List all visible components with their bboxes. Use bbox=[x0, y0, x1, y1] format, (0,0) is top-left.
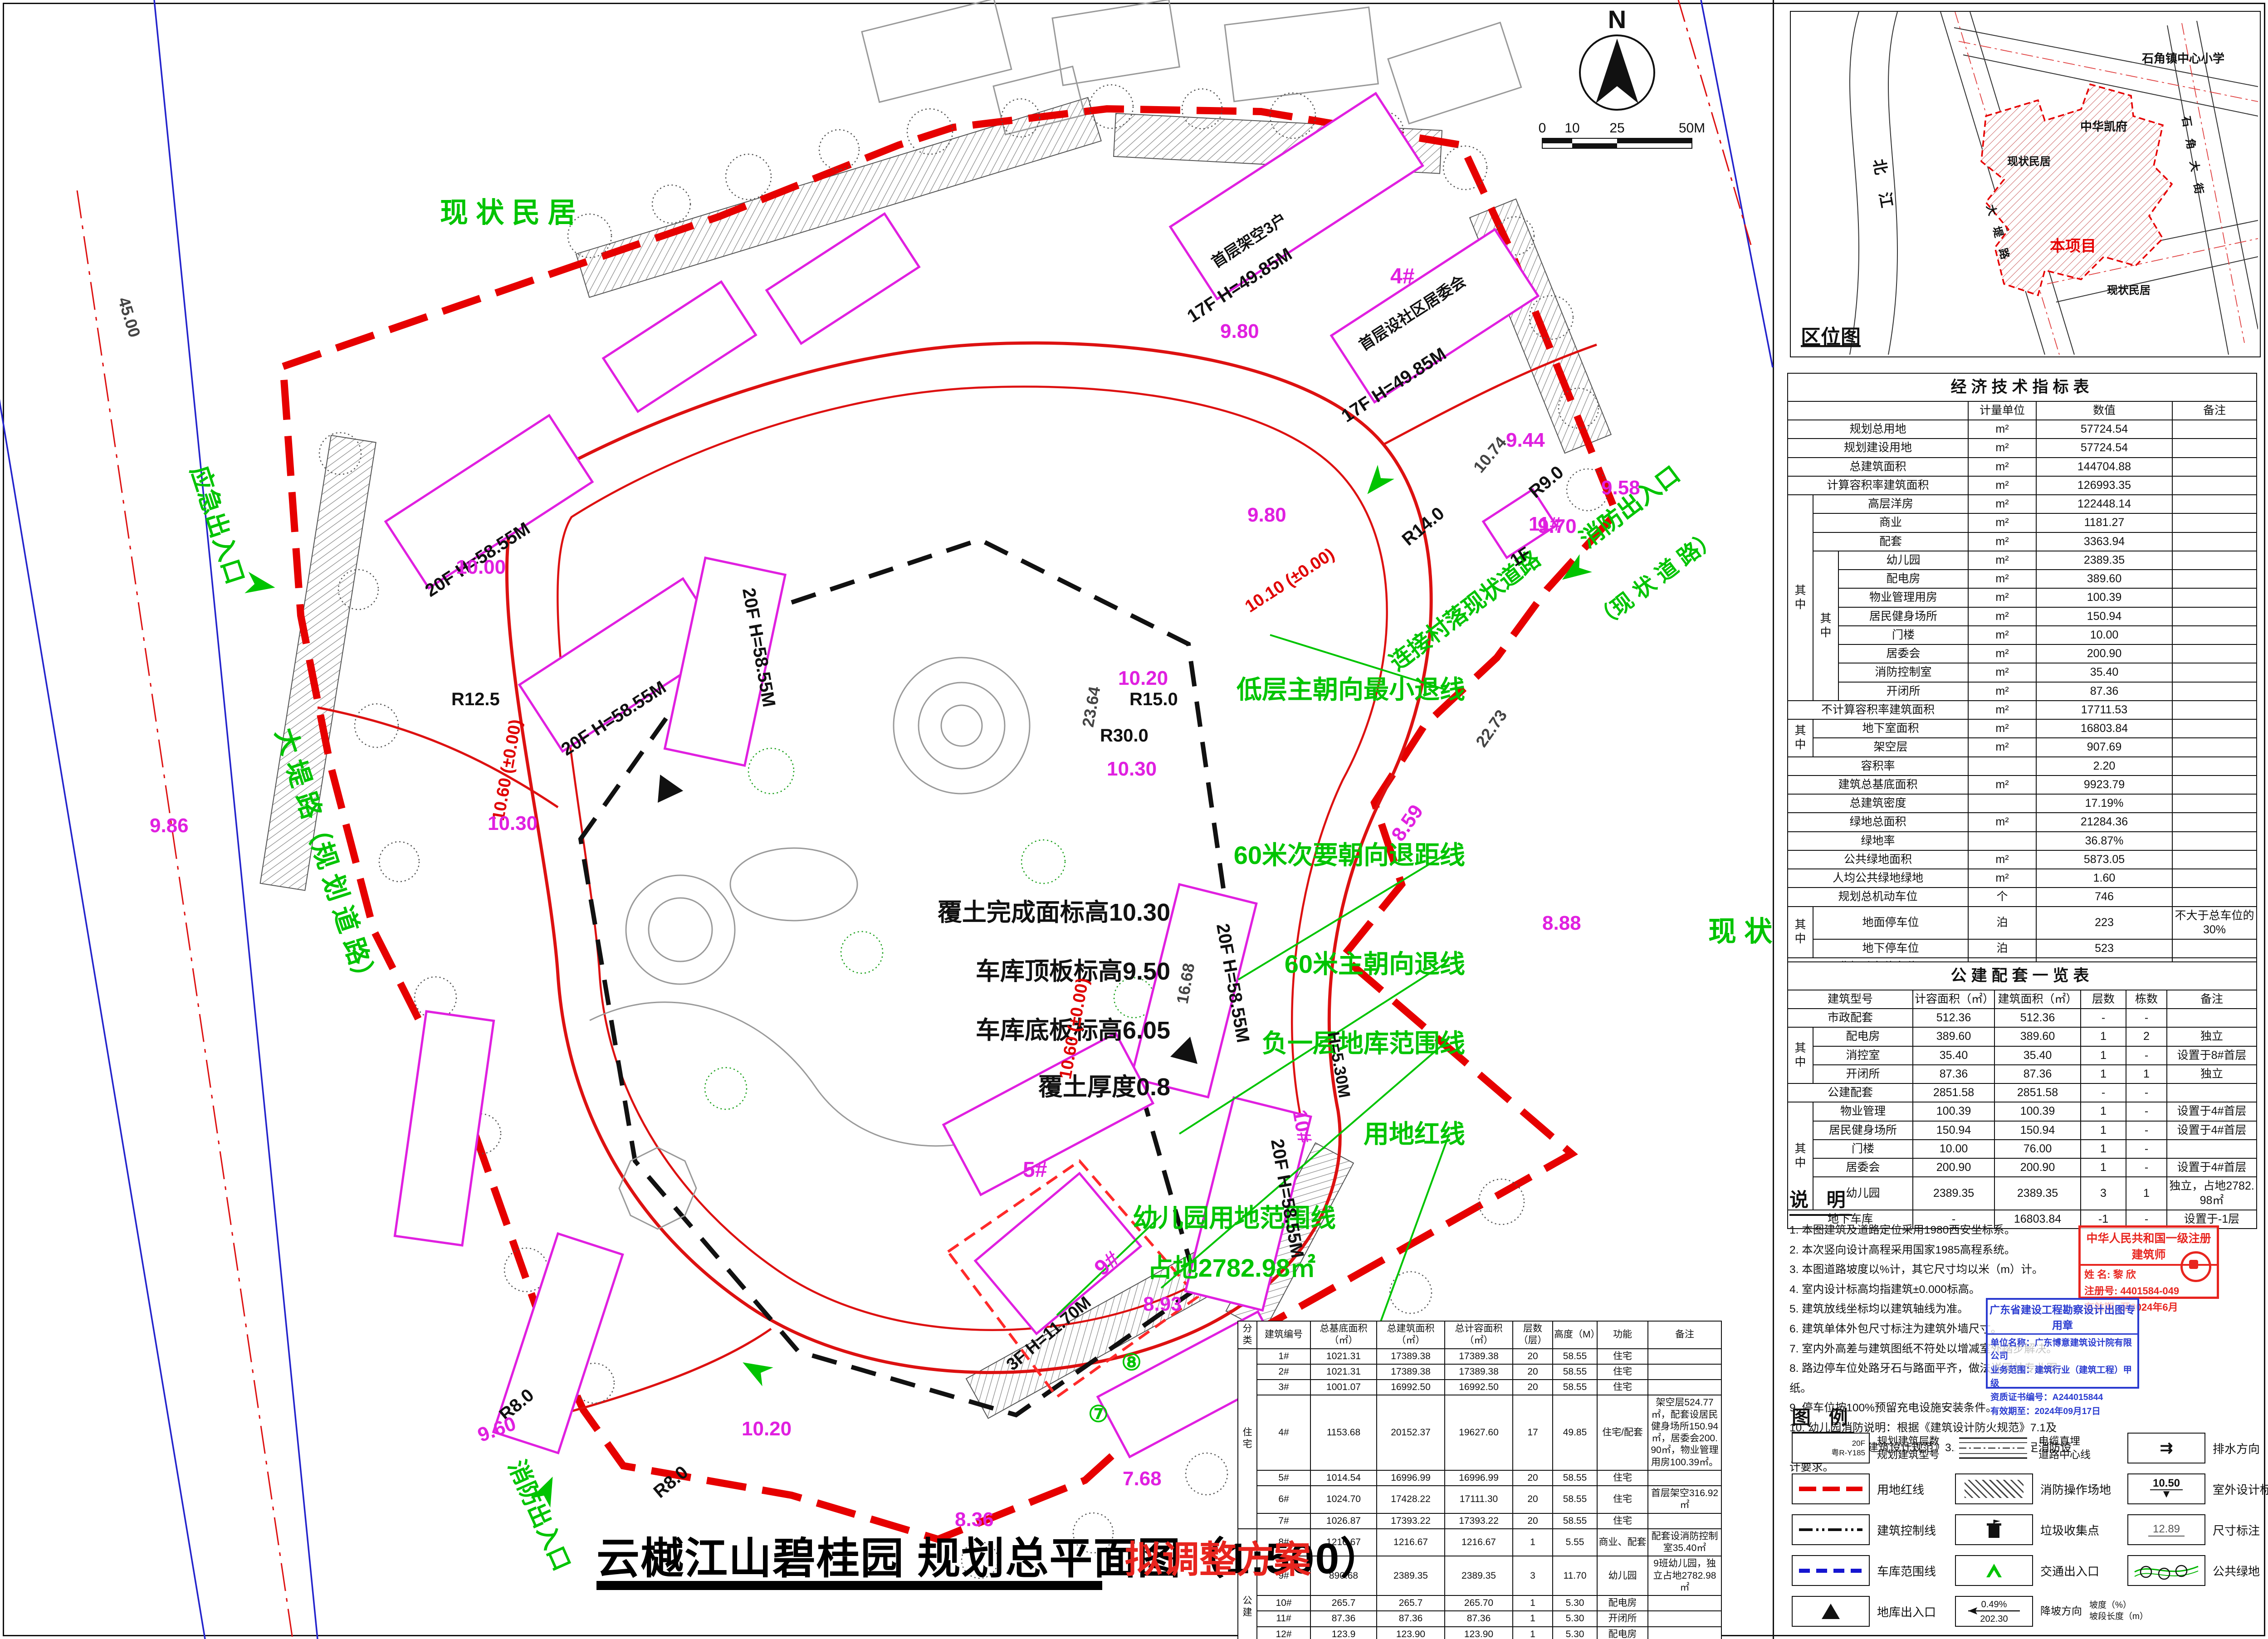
table-cell: 58.55 bbox=[1553, 1486, 1597, 1513]
table-row: 不计算容积率建筑面积m²17711.53 bbox=[1788, 701, 2257, 719]
table-cell: 2851.58 bbox=[1913, 1083, 1994, 1102]
table-cell bbox=[1648, 1513, 1721, 1529]
table-cell: - bbox=[2081, 1083, 2126, 1102]
table-cell bbox=[2172, 663, 2257, 682]
table-cell: 总计容面积（㎡） bbox=[1445, 1321, 1513, 1349]
table-row: 容积率2.20 bbox=[1788, 757, 2257, 776]
stamp-emblem-icon bbox=[2180, 1251, 2211, 1282]
table-cell: 总建筑面积 bbox=[1788, 458, 1968, 476]
table-cell: 消防控制室 bbox=[1838, 663, 1968, 682]
table-cell: 容积率 bbox=[1788, 757, 1968, 776]
table-cell bbox=[1648, 1349, 1721, 1364]
table-cell: 1 bbox=[2081, 1158, 2126, 1177]
title-underline bbox=[596, 1581, 1102, 1590]
table-cell: m² bbox=[1968, 551, 2036, 570]
table-cell: 16803.84 bbox=[2036, 719, 2172, 738]
spot-elev: 8.88 bbox=[1542, 912, 1581, 934]
table-row: 居委会200.90200.901-设置于4#首层 bbox=[1788, 1158, 2257, 1177]
label-kindergarten-line: 幼儿园用地范围线 bbox=[1133, 1204, 1336, 1232]
legend-item-control-line: 建筑控制线 bbox=[1792, 1512, 1936, 1547]
table-cell: 1 bbox=[2081, 1121, 2126, 1140]
table-cell: 其中 bbox=[1788, 1027, 1813, 1083]
table-row: 其中幼儿园m²2389.35 bbox=[1788, 551, 2257, 570]
legend-label: 公共绿地 bbox=[2213, 1562, 2260, 1579]
table-cell: 10.00 bbox=[1913, 1140, 1994, 1158]
legend-label: 建筑控制线 bbox=[1877, 1522, 1936, 1538]
table-cell: 公建配套 bbox=[1788, 1083, 1913, 1102]
legend-label: 排水方向 bbox=[2213, 1440, 2260, 1457]
legend-label: 地库出入口 bbox=[1877, 1603, 1936, 1620]
spot-elev: 10.20 bbox=[1118, 667, 1168, 689]
table-cell: 35.40 bbox=[1994, 1046, 2081, 1065]
table-cell: 2389.35 bbox=[2036, 551, 2172, 570]
table-cell: 58.55 bbox=[1553, 1470, 1597, 1486]
table-row: 分类建筑编号总基底面积（㎡）总建筑面积（㎡）总计容面积（㎡）层数（层）高度（M）… bbox=[1238, 1321, 1721, 1349]
table-cell: 设置于4#首层 bbox=[2167, 1158, 2257, 1177]
level-mark-icon: ▼ bbox=[2161, 1488, 2172, 1500]
note-item: 3. 本图道路坡度以%计，其它尺寸均以米（m）计。 bbox=[1789, 1260, 2074, 1280]
scale-bar: 0 10 25 50M bbox=[1539, 121, 1706, 148]
table-cell: 建筑编号 bbox=[1257, 1321, 1310, 1349]
table-cell bbox=[2172, 850, 2257, 869]
table-row: 物业管理用房m²100.39 bbox=[1788, 588, 2257, 607]
table-cell: 2389.35 bbox=[1377, 1556, 1445, 1595]
red-line-icon bbox=[1799, 1487, 1862, 1491]
planned-buildings bbox=[386, 93, 1556, 1457]
spot-elev: 8.59 bbox=[1387, 800, 1427, 845]
table-cell: 数值 bbox=[2036, 401, 2172, 420]
legend-label: 规划建筑层数 bbox=[1877, 1435, 1940, 1447]
locmap-street-label: 石角大街 bbox=[2180, 115, 2208, 207]
table-cell: 1 bbox=[2081, 1065, 2126, 1083]
table-cell bbox=[2172, 513, 2257, 532]
table-cell: 其中 bbox=[1788, 495, 1813, 701]
architect-st: 中华人民共和国一级注册建筑师 姓 名: 黎 欣 注册号: 4401584-049… bbox=[2078, 1225, 2219, 1299]
table-cell bbox=[2167, 1083, 2257, 1102]
table-row: 架空层m²907.69 bbox=[1788, 738, 2257, 756]
table-cell: 备注 bbox=[1648, 1321, 1721, 1349]
stamp-blue-l2: 业务范围：建筑行业（建筑工程）甲级 bbox=[1988, 1362, 2137, 1389]
table-cell: 1 bbox=[1513, 1595, 1553, 1611]
table-cell: m² bbox=[1968, 513, 2036, 532]
stamp-reg-label: 注册号: bbox=[2084, 1285, 2117, 1297]
table-cell: 1181.27 bbox=[2036, 513, 2172, 532]
north-arrow: N bbox=[1580, 5, 1654, 110]
table-cell: 泊 bbox=[1968, 939, 2036, 958]
table-cell bbox=[2172, 682, 2257, 701]
table-cell: 746 bbox=[2036, 888, 2172, 906]
table-cell: 11# bbox=[1257, 1611, 1310, 1626]
table-cell: 计算容积率建筑面积 bbox=[1788, 476, 1968, 495]
table-row: 建筑型号计容面积（㎡）建筑面积（㎡）层数栋数备注 bbox=[1788, 990, 2257, 1009]
table-cell: 1 bbox=[2081, 1140, 2126, 1158]
table-row: 居委会m²200.90 bbox=[1788, 644, 2257, 663]
table-cell: m² bbox=[1968, 663, 2036, 682]
table-cell bbox=[1968, 794, 2036, 813]
spot-elev: 9.70 bbox=[1538, 515, 1577, 537]
table-row: 总建筑密度17.19% bbox=[1788, 794, 2257, 813]
label-emergency-exit: 应急出入口 bbox=[186, 463, 249, 587]
table-cell: 265.7 bbox=[1377, 1595, 1445, 1611]
drawing-sheet: N 0 10 25 50M 现 状 民 居 应急出入口 大 堤 路（规 划 道 … bbox=[0, 0, 2268, 1639]
table-cell: 计容面积（㎡） bbox=[1913, 990, 1994, 1009]
table-cell: 76.00 bbox=[1994, 1140, 2081, 1158]
table-cell: 1 bbox=[1513, 1611, 1553, 1626]
table-cell: 栋数 bbox=[2126, 990, 2167, 1009]
table-cell: m² bbox=[1968, 813, 2036, 831]
notes-title: 说 明 bbox=[1789, 1185, 1852, 1216]
table-cell: 49.85 bbox=[1553, 1395, 1597, 1470]
locmap-resid2-label: 现状民居 bbox=[2107, 284, 2151, 297]
table-cell: 10.00 bbox=[2036, 626, 2172, 644]
table-cell: m² bbox=[1968, 682, 2036, 701]
table-cell: 不计算容积率建筑面积 bbox=[1788, 701, 1968, 719]
table-cell: 512.36 bbox=[1994, 1009, 2081, 1027]
table-cell: 备注 bbox=[2167, 990, 2257, 1009]
table-cell: 住宅 bbox=[1597, 1349, 1648, 1364]
table-row: 其中地面停车位泊223不大于总车位的30% bbox=[1788, 907, 2257, 940]
table-cell: 地下室面积 bbox=[1813, 719, 1968, 738]
table-cell: 住宅 bbox=[1597, 1513, 1648, 1529]
table-row: 3#1001.0716992.5016992.502058.55住宅 bbox=[1238, 1380, 1721, 1395]
table-cell: m² bbox=[1968, 626, 2036, 644]
dim-value: 12.89 bbox=[2148, 1523, 2185, 1537]
table-cell: 配电房 bbox=[1597, 1627, 1648, 1639]
table-row: 5#1014.5416996.9916996.992058.55住宅 bbox=[1238, 1470, 1721, 1486]
radius-label: R14.0 bbox=[1398, 503, 1448, 550]
table-cell: 4# bbox=[1257, 1395, 1310, 1470]
table-cell: 居民健身场所 bbox=[1813, 1121, 1913, 1140]
table-cell: 独立 bbox=[2167, 1027, 2257, 1046]
table-cell: 1153.68 bbox=[1310, 1395, 1377, 1470]
table-row: 公建配套2851.582851.58-- bbox=[1788, 1083, 2257, 1102]
table-cell: 配电房 bbox=[1597, 1595, 1648, 1611]
legend-label: 用地红线 bbox=[1877, 1481, 1924, 1498]
spot-elev: 10.20 bbox=[742, 1418, 792, 1440]
table-cell: 1# bbox=[1257, 1349, 1310, 1364]
table-cell: 3 bbox=[2081, 1177, 2126, 1210]
table-cell: 设置于4#首层 bbox=[2167, 1102, 2257, 1121]
table-cell: 265.7 bbox=[1310, 1595, 1377, 1611]
table-row: 建筑总基底面积m²9923.79 bbox=[1788, 776, 2257, 794]
table-cell: 17389.38 bbox=[1377, 1364, 1445, 1380]
legend-item-green: 公共绿地 bbox=[2127, 1553, 2260, 1588]
table-cell bbox=[1648, 1470, 1721, 1486]
table-cell: 架空层524.77㎡，配套设居民健身场所150.94㎡，居委会200.90㎡，物… bbox=[1648, 1395, 1721, 1470]
table-cell: 17111.30 bbox=[1445, 1486, 1513, 1513]
stamp-blue-l1: 单位名称：广东博意建筑设计院有限公司 bbox=[1988, 1335, 2137, 1362]
note-item: 4. 室内设计标高均指建筑±0.000标高。 bbox=[1789, 1280, 2074, 1300]
circled-number: ⑧ bbox=[1121, 1350, 1142, 1375]
table-cell bbox=[1648, 1595, 1721, 1611]
table-cell: 512.36 bbox=[1913, 1009, 1994, 1027]
radius-label: R30.0 bbox=[1100, 726, 1149, 746]
legend-label: 降坡方向 bbox=[2040, 1605, 2082, 1617]
table-cell bbox=[2172, 570, 2257, 588]
table-cell: 17389.38 bbox=[1377, 1349, 1445, 1364]
table-cell: 6# bbox=[1257, 1486, 1310, 1513]
table-cell bbox=[2172, 532, 2257, 551]
table-cell: 1001.07 bbox=[1310, 1380, 1377, 1395]
locmap-resid1-label: 现状民居 bbox=[2007, 156, 2051, 168]
table-row: 公共绿地面积m²5873.05 bbox=[1788, 850, 2257, 869]
table-cell: 开闭所 bbox=[1838, 682, 1968, 701]
locmap-project-label: 本项目 bbox=[2050, 238, 2096, 255]
table-cell: m² bbox=[1968, 738, 2036, 756]
bldg-number: 5# bbox=[1023, 1158, 1047, 1182]
table-cell: m² bbox=[1968, 701, 2036, 719]
table-cell: 独立 bbox=[2167, 1065, 2257, 1083]
table-cell: 58.55 bbox=[1553, 1513, 1597, 1529]
table-cell: 其中 bbox=[1813, 551, 1838, 701]
table-cell bbox=[2172, 551, 2257, 570]
table-cell: 架空层 bbox=[1813, 738, 1968, 756]
table-cell: m² bbox=[1968, 476, 2036, 495]
table-cell: 58.55 bbox=[1553, 1349, 1597, 1364]
table-cell: 5873.05 bbox=[2036, 850, 2172, 869]
table-cell: 市政配套 bbox=[1788, 1009, 1913, 1027]
label-basement-line: 负一层地库范围线 bbox=[1262, 1029, 1465, 1058]
table-cell: 独立，占地2782.98㎡ bbox=[2167, 1177, 2257, 1210]
table-row: 门楼10.0076.001- bbox=[1788, 1140, 2257, 1158]
table-cell: 265.70 bbox=[1445, 1595, 1513, 1611]
table-cell bbox=[2172, 644, 2257, 663]
table-cell: 总建筑密度 bbox=[1788, 794, 1968, 813]
legend-item-dim: 12.89 尺寸标注 bbox=[2127, 1512, 2260, 1547]
table-cell: 层数 bbox=[2081, 990, 2126, 1009]
table-cell: 100.39 bbox=[1913, 1102, 1994, 1121]
table-cell: 1 bbox=[2081, 1046, 2126, 1065]
table-cell bbox=[2172, 458, 2257, 476]
scheme-tag: 拟调整方案 bbox=[1125, 1529, 1311, 1583]
table-cell: 规划总机动车位 bbox=[1788, 888, 1968, 906]
table-cell: 绿地率 bbox=[1788, 832, 1968, 850]
scale-0: 0 bbox=[1539, 121, 1546, 136]
radius-label: R15.0 bbox=[1129, 689, 1178, 709]
table-cell: - bbox=[2126, 1158, 2167, 1177]
table-row: 人均公共绿地绿地m²1.60 bbox=[1788, 869, 2257, 888]
table-row: 开闭所87.3687.3611独立 bbox=[1788, 1065, 2257, 1083]
legend-label: 交通出入口 bbox=[2040, 1562, 2099, 1579]
table-cell bbox=[2172, 701, 2257, 719]
table-row: 门楼m²10.00 bbox=[1788, 626, 2257, 644]
table-cell: 分类 bbox=[1238, 1321, 1257, 1349]
table-cell: 人均公共绿地绿地 bbox=[1788, 869, 1968, 888]
table-cell: 地面停车位 bbox=[1813, 907, 1968, 940]
fire-pad-icon bbox=[1965, 1480, 2024, 1498]
table-cell bbox=[2172, 888, 2257, 906]
table-cell: 5.55 bbox=[1553, 1529, 1597, 1556]
table-cell: 17428.22 bbox=[1377, 1486, 1445, 1513]
table-row: 开闭所m²87.36 bbox=[1788, 682, 2257, 701]
table-cell: 功能 bbox=[1597, 1321, 1648, 1349]
legend-item-level: 10.50▼ 室外设计标高 bbox=[2127, 1471, 2268, 1507]
table-cell bbox=[2172, 832, 2257, 850]
radius-label: R12.5 bbox=[451, 689, 500, 709]
location-map: 石角镇中心小学 中华凯府 现状民居 现状民居 本项目 北江 大堤路 石角大街 区… bbox=[1791, 12, 2258, 355]
legend-item-drain: ⇉ 排水方向 bbox=[2127, 1430, 2260, 1466]
table-cell: 35.40 bbox=[1913, 1046, 1994, 1065]
table-cell: 1216.67 bbox=[1445, 1529, 1513, 1556]
table-cell: 总建筑面积（㎡） bbox=[1377, 1321, 1445, 1349]
spot-elev: 9.80 bbox=[1247, 504, 1286, 526]
table-cell: 17389.38 bbox=[1445, 1349, 1513, 1364]
table-cell: 地下停车位 bbox=[1813, 939, 1968, 958]
table-cell: m² bbox=[1968, 495, 2036, 513]
slope-length: 202.30 bbox=[1980, 1614, 2008, 1624]
legend-tag-floors: 20F bbox=[1852, 1439, 1865, 1448]
table-cell: 物业管理 bbox=[1813, 1102, 1913, 1121]
table-cell: 5.30 bbox=[1553, 1627, 1597, 1639]
public-green-icon bbox=[2132, 1558, 2200, 1583]
table-cell: 经济技术指标表 bbox=[1788, 373, 2257, 401]
table-cell: 其中 bbox=[1788, 719, 1813, 757]
spot-elev: 7.68 bbox=[1123, 1468, 1162, 1490]
table-cell: 备注 bbox=[2172, 401, 2257, 420]
legend-item-entrance: 交通出入口 bbox=[1955, 1553, 2099, 1588]
table-row: 2#1021.3117389.3817389.382058.55住宅 bbox=[1238, 1364, 1721, 1380]
table-cell: 2.20 bbox=[2036, 757, 2172, 776]
dim-label: 23.64 bbox=[1079, 685, 1104, 729]
table-cell: 1021.31 bbox=[1310, 1364, 1377, 1380]
table-cell: 住宅 bbox=[1597, 1380, 1648, 1395]
table-row: 6#1024.7017428.2217111.302058.55住宅首层架空31… bbox=[1238, 1486, 1721, 1513]
north-label: N bbox=[1608, 5, 1626, 34]
table-row: 12#123.9123.90123.9015.30配电房 bbox=[1238, 1627, 1721, 1639]
table-cell: 11.70 bbox=[1553, 1556, 1597, 1595]
table-cell: m² bbox=[1968, 850, 2036, 869]
table-cell bbox=[1648, 1380, 1721, 1395]
building-tag-icon: 20F粤R-Y185 bbox=[1792, 1433, 1870, 1463]
legend-item-road: 电缆直埋道路中心线 bbox=[1955, 1430, 2091, 1466]
table-cell: m² bbox=[1968, 420, 2036, 439]
control-line-icon bbox=[1799, 1528, 1862, 1531]
table-cell: 150.94 bbox=[1913, 1121, 1994, 1140]
table-cell: 居民健身场所 bbox=[1838, 607, 1968, 626]
drain-direction-icon: ⇉ bbox=[2160, 1439, 2173, 1457]
table-cell: 1 bbox=[1513, 1529, 1553, 1556]
table-row: 计算容积率建筑面积m²126993.35 bbox=[1788, 476, 2257, 495]
table-cell: 规划建设用地 bbox=[1788, 439, 1968, 457]
note-item: 1. 本图建筑及道路定位采用1980西安坐标系。 bbox=[1789, 1220, 2074, 1240]
table-cell: m² bbox=[1968, 719, 2036, 738]
table-cell: 200.90 bbox=[1994, 1158, 2081, 1177]
legend-label: 消防操作场地 bbox=[2040, 1481, 2111, 1498]
table-row: 消控室35.4035.401-设置于8#首层 bbox=[1788, 1046, 2257, 1065]
table-cell: 907.69 bbox=[2036, 738, 2172, 756]
table-row: 其中地下室面积m²16803.84 bbox=[1788, 719, 2257, 738]
table-cell: 层数（层） bbox=[1513, 1321, 1553, 1349]
table-cell: - bbox=[2126, 1083, 2167, 1102]
table-cell: 住宅 bbox=[1597, 1364, 1648, 1380]
table-cell: 17 bbox=[1513, 1395, 1553, 1470]
spot-elev: 9.60 bbox=[475, 1412, 519, 1446]
table-cell: 2# bbox=[1257, 1364, 1310, 1380]
table-cell: 100.39 bbox=[2036, 588, 2172, 607]
table-cell: 123.90 bbox=[1377, 1627, 1445, 1639]
table-row: 居民健身场所m²150.94 bbox=[1788, 607, 2257, 626]
location-map-box: 石角镇中心小学 中华凯府 现状民居 现状民居 本项目 北江 大堤路 石角大街 区… bbox=[1790, 11, 2261, 357]
existing-buildings bbox=[862, 0, 1521, 135]
table-cell: 123.9 bbox=[1310, 1627, 1377, 1639]
table-cell: 9923.79 bbox=[2036, 776, 2172, 794]
table-cell bbox=[2172, 439, 2257, 457]
table-cell: 150.94 bbox=[2036, 607, 2172, 626]
table-row: 住宅1#1021.3117389.3817389.382058.55住宅 bbox=[1238, 1349, 1721, 1364]
spot-elev: 9.86 bbox=[150, 815, 189, 837]
table-cell bbox=[2172, 588, 2257, 607]
label-fire-exit-sw: 消防出入口 bbox=[503, 1456, 575, 1575]
table-cell: 配电房 bbox=[1838, 570, 1968, 588]
table-row: 其中配电房389.60389.6012独立 bbox=[1788, 1027, 2257, 1046]
table-cell: 1 bbox=[2126, 1065, 2167, 1083]
spot-elev: 9.44 bbox=[1506, 429, 1545, 451]
table-cell: 200.90 bbox=[2036, 644, 2172, 663]
legend-tag-model: 粤R-Y185 bbox=[1831, 1449, 1865, 1457]
legend-label: 室外设计标高 bbox=[2213, 1481, 2268, 1498]
traffic-entrance-icon bbox=[1986, 1564, 2002, 1577]
table-row: 消防控制室m²35.40 bbox=[1788, 663, 2257, 682]
table-cell: - bbox=[2126, 1140, 2167, 1158]
table-cell: 12# bbox=[1257, 1627, 1310, 1639]
table-cell: 3 bbox=[1513, 1556, 1553, 1595]
dim-label: 10.74 bbox=[1470, 433, 1510, 476]
table-cell: 57724.54 bbox=[2036, 420, 2172, 439]
table-cell: 20 bbox=[1513, 1380, 1553, 1395]
table-cell: 20152.37 bbox=[1377, 1395, 1445, 1470]
table-cell: 123.90 bbox=[1445, 1627, 1513, 1639]
table-row: 配套m²3363.94 bbox=[1788, 532, 2257, 551]
table-cell bbox=[2167, 1140, 2257, 1158]
table-row: 地下停车位泊523 bbox=[1788, 939, 2257, 958]
table-cell: 5.30 bbox=[1553, 1595, 1597, 1611]
table-cell: m² bbox=[1968, 644, 2036, 663]
table-cell: - bbox=[2126, 1102, 2167, 1121]
table-cell bbox=[2172, 776, 2257, 794]
label-fire-exit-ne: 消防出入口 bbox=[1575, 461, 1685, 553]
bldg-number: 4# bbox=[1390, 264, 1414, 288]
table-cell: 设置于4#首层 bbox=[2167, 1121, 2257, 1140]
table-cell bbox=[1788, 401, 1968, 420]
table-cell: 1 bbox=[2081, 1102, 2126, 1121]
table-cell: 开闭所 bbox=[1813, 1065, 1913, 1083]
table-cell: 5# bbox=[1257, 1470, 1310, 1486]
table-cell bbox=[2172, 719, 2257, 738]
label-setback-secondary: 60米次要朝向退距线 bbox=[1234, 841, 1465, 869]
table-cell: m² bbox=[1968, 439, 2036, 457]
table-row: 总建筑面积m²144704.88 bbox=[1788, 458, 2257, 476]
table-cell: 幼儿园 bbox=[1838, 551, 1968, 570]
slope-arrow-icon: 0.49% 202.30 bbox=[1960, 1599, 2028, 1624]
table-cell: 10# bbox=[1257, 1595, 1310, 1611]
label-existing-road: （现 状 道 路） bbox=[1589, 525, 1723, 634]
table-row: 商业m²1181.27 bbox=[1788, 513, 2257, 532]
table-cell: 1 bbox=[1513, 1627, 1553, 1639]
table-row: 11#87.3687.3687.3615.30开闭所 bbox=[1238, 1611, 1721, 1626]
table-cell bbox=[1648, 1611, 1721, 1626]
table-cell: 17393.22 bbox=[1377, 1513, 1445, 1529]
slope-note-top: 坡度（%） bbox=[2089, 1600, 2131, 1610]
stamp-blue-l3: 资质证书编号：A244015844 bbox=[1988, 1389, 2137, 1403]
table-cell bbox=[1648, 1627, 1721, 1639]
table-cell: m² bbox=[1968, 776, 2036, 794]
dim-label: 45.00 bbox=[114, 295, 144, 339]
table-cell bbox=[2172, 813, 2257, 831]
table-cell bbox=[2172, 738, 2257, 756]
table-cell: 1.60 bbox=[2036, 869, 2172, 888]
table-row: 规划建设用地m²57724.54 bbox=[1788, 439, 2257, 457]
stamp-name: 黎 欣 bbox=[2113, 1269, 2136, 1280]
